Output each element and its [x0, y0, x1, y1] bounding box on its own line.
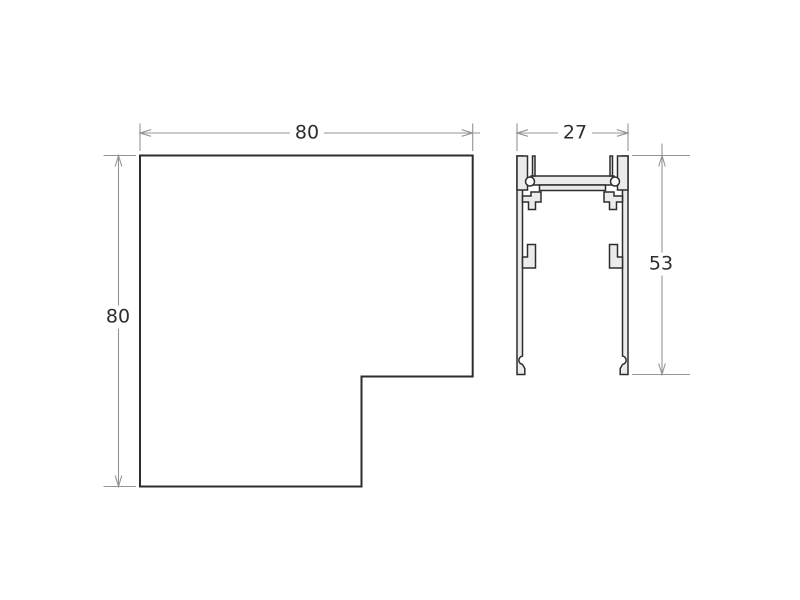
plan-view-outline [140, 156, 473, 487]
plan-width-label: 80 [290, 122, 324, 145]
section-height-label: 53 [644, 253, 678, 276]
plan-view [140, 156, 473, 487]
section-mid-hook [523, 245, 536, 269]
section-view [517, 156, 628, 375]
section-left-half [517, 156, 541, 375]
section-top-bar [531, 176, 614, 185]
section-cap-outer [517, 156, 528, 190]
section-step-bracket [523, 192, 542, 210]
section-right-half [604, 156, 628, 375]
section-keyhole-cavity [526, 177, 535, 186]
drawing-svg [0, 0, 800, 600]
plan-height-label: 80 [101, 306, 135, 329]
section-bar-lip [540, 185, 606, 191]
technical-drawing-canvas: 80 80 27 53 [0, 0, 800, 600]
section-cap-inner [533, 156, 536, 176]
section-width-label: 27 [558, 122, 592, 145]
